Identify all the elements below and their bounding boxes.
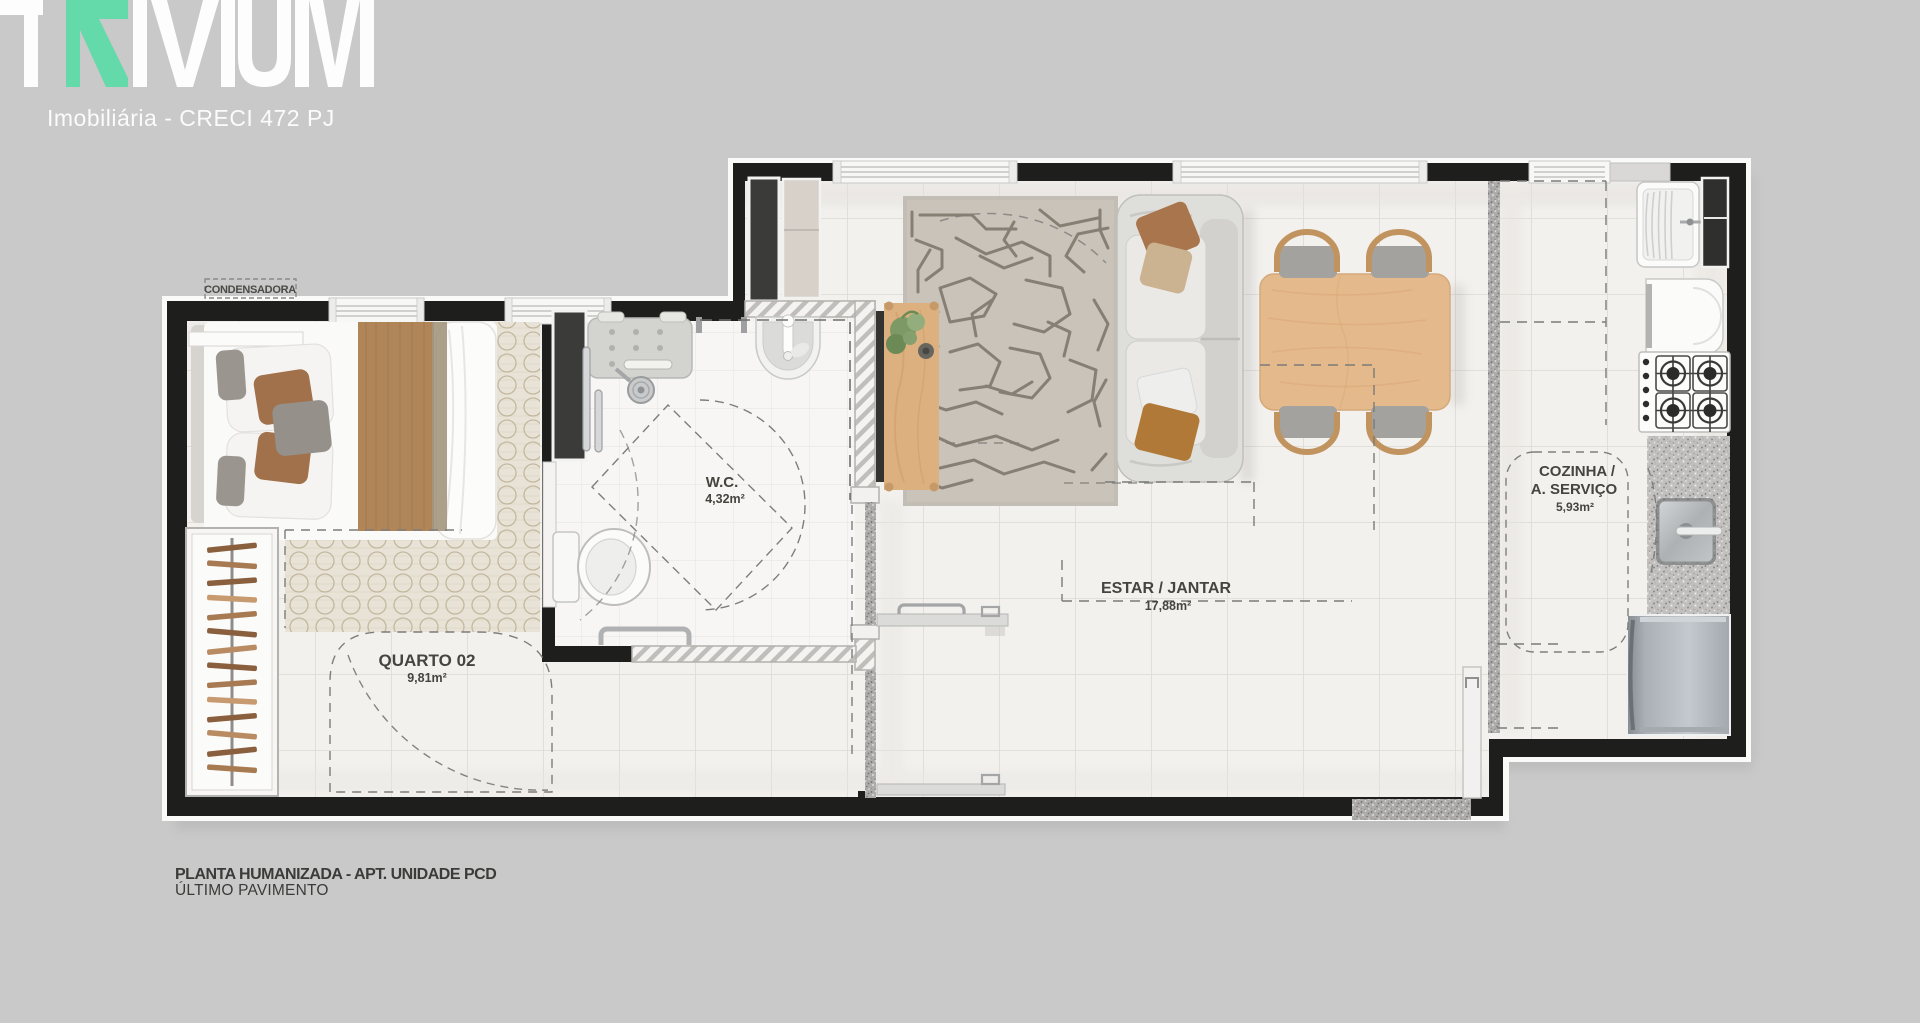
svg-text:QUARTO 02: QUARTO 02 (379, 651, 476, 670)
svg-text:W.C.: W.C. (706, 474, 739, 491)
svg-text:ÚLTIMO PAVIMENTO: ÚLTIMO PAVIMENTO (175, 882, 329, 899)
svg-text:9,81m²: 9,81m² (407, 671, 447, 685)
svg-text:4,32m²: 4,32m² (705, 492, 745, 506)
svg-text:Imobiliária - CRECI 472 PJ: Imobiliária - CRECI 472 PJ (47, 105, 335, 131)
svg-text:COZINHA /: COZINHA / (1539, 463, 1616, 480)
svg-text:A. SERVIÇO: A. SERVIÇO (1531, 481, 1618, 498)
svg-text:17,88m²: 17,88m² (1145, 599, 1192, 613)
svg-text:CONDENSADORA: CONDENSADORA (204, 284, 296, 296)
svg-text:PLANTA HUMANIZADA - APT. UNIDA: PLANTA HUMANIZADA - APT. UNIDADE PCD (175, 866, 496, 883)
svg-text:5,93m²: 5,93m² (1556, 500, 1594, 514)
svg-text:ESTAR / JANTAR: ESTAR / JANTAR (1101, 580, 1232, 597)
